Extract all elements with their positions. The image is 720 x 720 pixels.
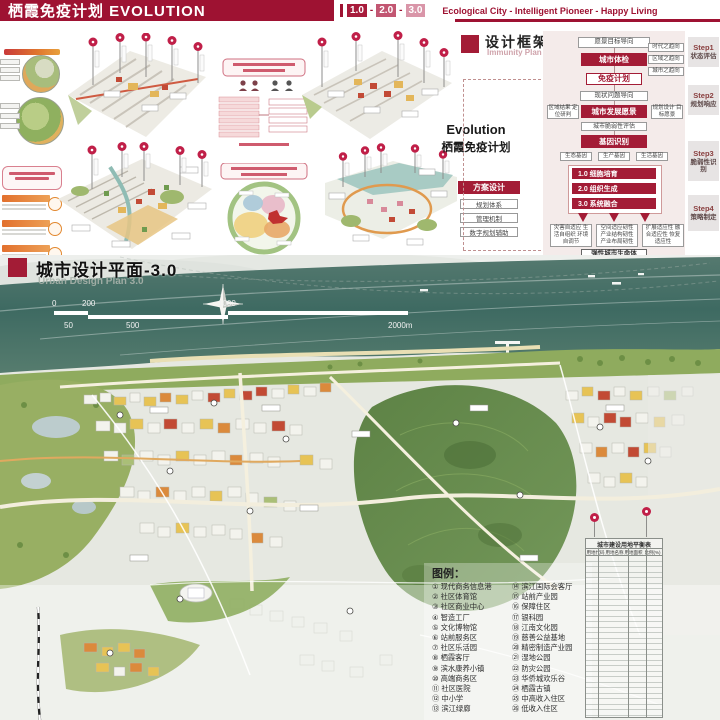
scale-label: 500 (126, 321, 139, 330)
version-badge-2: 2.0 (376, 4, 396, 17)
land-use-table: 城市建设用地平衡表 用地代码 用地名称 用地面积(hm²) 比例(%) (585, 538, 663, 718)
scale-segment (54, 311, 88, 315)
step-4: Step4 策略制定 (688, 195, 719, 231)
scheme-item-3: 数字规划辅助 (460, 227, 518, 237)
node-adapt-3: 扩展适应性 融合适应性 恢复适应性 (642, 224, 684, 247)
stage-1: 1.0 细胞培育 (572, 168, 656, 179)
legend-item: ⑭ 滨江国际会客厅 (512, 582, 572, 592)
axon-diagram-1 (58, 33, 213, 145)
node-adapt-2: 空间适应韧性 产业结构韧性 产业布局韧性 (596, 224, 638, 247)
version-dash: - (399, 5, 402, 16)
node-trend3: 城市之趋向 (648, 67, 684, 76)
step-label: 脆弱性识别 (688, 159, 719, 173)
stage-2: 2.0 组织生成 (572, 183, 656, 194)
legend-panel: 图例： ① 现代商务信息港 ② 社区体育馆 ③ 社区商业中心 ④ 智造工厂 ⑤ … (424, 563, 592, 720)
legend-item: ⑲ 慈善公益基地 (512, 633, 572, 643)
card-line (2, 208, 46, 210)
card-header (2, 245, 50, 252)
red-arrow (609, 213, 619, 222)
legend-item: ⑰ 银科园 (512, 613, 572, 623)
scale-label: 1000 (218, 299, 236, 308)
legend-item: ㉕ 中高收入住区 (512, 694, 572, 704)
step-number: Step4 (693, 204, 713, 213)
legend-item: ⑨ 滨水康养小镇 (432, 664, 492, 674)
legend-column-1: ① 现代商务信息港 ② 社区体育馆 ③ 社区商业中心 ④ 智造工厂 ⑤ 文化博物… (432, 582, 492, 715)
node-checkup: 城市体检 (581, 53, 647, 66)
legend-item: ⑧ 栖霞客厅 (432, 653, 492, 663)
note-text-line (9, 172, 55, 175)
legend-title: 图例： (432, 565, 465, 581)
scale-label: 2000m (388, 321, 412, 330)
framework-title-square (461, 35, 479, 53)
poster: 栖霞免疫计划 EVOLUTION 1.0 - 2.0 - 3.0 Ecologi… (0, 0, 720, 720)
table-column-line (628, 548, 629, 717)
map-pin (594, 521, 595, 537)
master-plan-section: 城市设计平面-3.0 Urban Design Plan 3.0 0 200 1… (0, 255, 720, 720)
version-badge-1: 1.0 (347, 4, 367, 17)
table-column-line (598, 548, 599, 717)
legend-item: ⑬ 滨江绿廊 (432, 704, 492, 714)
header: 栖霞免疫计划 EVOLUTION 1.0 - 2.0 - 3.0 Ecologi… (0, 0, 720, 23)
evolution-cn: 栖霞免疫计划 (430, 139, 522, 155)
node-problem: 现状问题导向 (580, 91, 648, 101)
stage-3: 3.0 系统融合 (572, 198, 656, 209)
scheme-item-2: 管理机制 (460, 213, 518, 223)
plan-subtitle: Urban Design Plan 3.0 (38, 276, 144, 287)
legend-item: ⑮ 站前产业园 (512, 592, 572, 602)
node-gene2: 生产基因 (598, 152, 630, 161)
node-vulnerability: 城市脆弱性评估 (581, 122, 647, 131)
card-header (2, 195, 50, 202)
step-number: Step3 (693, 149, 713, 158)
dashed-connector (463, 79, 464, 250)
legend-item: ④ 智造工厂 (432, 613, 492, 623)
legend-item: ㉒ 防灾公园 (512, 664, 572, 674)
legend-item: ① 现代商务信息港 (432, 582, 492, 592)
legend-item: ⑪ 社区医院 (432, 684, 492, 694)
legend-item: ⑩ 高端商务区 (432, 674, 492, 684)
scheme-item-1: 规划体系 (460, 199, 518, 209)
step-1: Step1 状态评估 (688, 37, 719, 67)
evolution-label: Evolution 栖霞免疫计划 (430, 122, 522, 155)
step-label: 策略制定 (691, 214, 717, 221)
legend-item: ⑫ 中小学 (432, 694, 492, 704)
step-label: 状态评估 (691, 53, 717, 60)
legend-item: ⑥ 站前服务区 (432, 633, 492, 643)
legend-item: ⑳ 精密制造产业园 (512, 643, 572, 653)
legend-item: ㉔ 栖霞古镇 (512, 684, 572, 694)
legend-item: ㉖ 低收入住区 (512, 704, 572, 714)
header-underline (455, 19, 720, 22)
inset-label (0, 113, 20, 119)
legend-item: ⑦ 社区乐活园 (432, 643, 492, 653)
card-line (2, 204, 46, 206)
evolution-en: Evolution (430, 122, 522, 137)
inset-label (0, 123, 20, 129)
legend-item: ㉓ 华侨城欢乐谷 (512, 674, 572, 684)
scale-segment (228, 311, 408, 315)
version-dash: - (370, 5, 373, 16)
plan-title-square (8, 258, 27, 277)
scheme-design-box: 方案设计 (458, 181, 520, 194)
node-side-right: 规划设计 目标愿景 (651, 105, 683, 119)
axon-diagram-3 (52, 141, 217, 255)
table-column-line (646, 548, 647, 717)
note-text-line (15, 177, 49, 180)
node-dev-vision: 城市发展愿景 (581, 105, 647, 118)
step-number: Step1 (693, 43, 713, 52)
legend-item: ② 社区体育馆 (432, 592, 492, 602)
step-label: 规划响应 (691, 101, 717, 108)
header-right: 1.0 - 2.0 - 3.0 Ecological City - Intell… (340, 0, 720, 21)
step-number: Step2 (693, 91, 713, 100)
legend-item: ⑤ 文化博物馆 (432, 623, 492, 633)
version-badge-3: 3.0 (406, 4, 426, 17)
card-line (2, 233, 46, 235)
card-header (2, 220, 50, 227)
table-header: 用地面积(hm²) (624, 549, 643, 555)
red-arrow (640, 213, 650, 222)
card-line (2, 229, 46, 231)
scale-label: 0 (52, 299, 56, 308)
step-3: Step3 脆弱性识别 (688, 141, 719, 181)
axon-diagram-4 (323, 143, 459, 255)
node-immunity: 免疫计划 (586, 73, 642, 85)
legend-item: ㉑ 湿地公园 (512, 653, 572, 663)
node-gene1: 生态基因 (560, 152, 592, 161)
version-tick (340, 4, 343, 17)
legend-item: ⑱ 江南文化园 (512, 623, 572, 633)
left-item-list (219, 97, 259, 137)
node-trend1: 时代之趋向 (648, 43, 684, 52)
node-trend2: 区域之趋向 (648, 55, 684, 64)
synergy-venn-panel (213, 163, 315, 255)
node-adapt-1: 灾害自适应 生活自组织 环境自调节 (550, 224, 592, 247)
detail-inset-circle-2 (16, 97, 64, 145)
connector (614, 66, 615, 73)
inset-label (0, 75, 20, 81)
node-gene: 基因识别 (581, 135, 647, 148)
red-arrow (578, 213, 588, 222)
table-header: 用地名称 (605, 549, 624, 555)
legend-item: ③ 社区商业中心 (432, 602, 492, 612)
top-diagram-area: Evolution 栖霞免疫计划 方案设计 规划体系 管理机制 数字规划辅助 设… (0, 23, 720, 255)
table-header: 用地代码 (586, 549, 605, 555)
step-2: Step2 规划响应 (688, 85, 719, 115)
map-pin (646, 515, 647, 537)
inset-label (0, 59, 20, 65)
node-vision: 愿景目标导向 (578, 37, 650, 48)
header-title-bar: 栖霞免疫计划 EVOLUTION (0, 0, 334, 21)
header-tagline: Ecological City - Intelligent Pioneer - … (442, 6, 657, 16)
detail-inset-circle-1 (22, 55, 60, 93)
node-side-left: 区域结果 定位研判 (547, 105, 579, 119)
person-icons (239, 80, 293, 91)
scale-label: 50 (64, 321, 73, 330)
framework-subtitle: Immunity Plan (487, 48, 542, 57)
inset-label (0, 103, 20, 109)
scale-label: 200 (82, 299, 95, 308)
inset-caption-bar (4, 49, 60, 55)
legend-item: ⑯ 保障住区 (512, 602, 572, 612)
legend-column-2: ⑭ 滨江国际会客厅 ⑮ 站前产业园 ⑯ 保障住区 ⑰ 银科园 ⑱ 江南文化园 ⑲… (512, 582, 572, 715)
scale-segment (88, 315, 228, 319)
inset-label (0, 67, 20, 73)
node-gene3: 生活基因 (636, 152, 668, 161)
poster-title: 栖霞免疫计划 EVOLUTION (8, 0, 206, 21)
